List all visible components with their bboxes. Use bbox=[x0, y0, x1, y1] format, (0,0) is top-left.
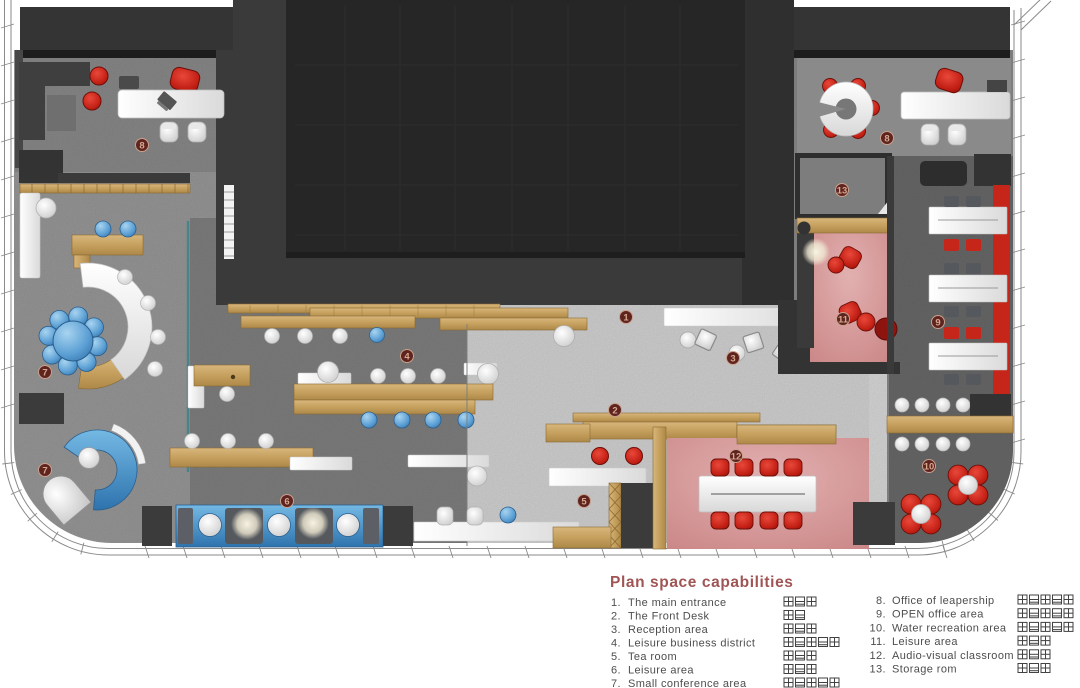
svg-text:Storage rom: Storage rom bbox=[892, 664, 957, 676]
svg-text:8: 8 bbox=[139, 140, 144, 151]
svg-text:11: 11 bbox=[838, 314, 849, 325]
svg-text:1: 1 bbox=[623, 312, 629, 323]
svg-text:Leisure business district: Leisure business district bbox=[628, 638, 755, 650]
svg-text:10: 10 bbox=[924, 461, 935, 472]
svg-text:4: 4 bbox=[404, 351, 410, 362]
svg-text:Plan space capabilities: Plan space capabilities bbox=[610, 574, 794, 591]
svg-text:11.: 11. bbox=[870, 636, 886, 648]
svg-text:13: 13 bbox=[837, 185, 848, 196]
svg-text:2.: 2. bbox=[611, 611, 621, 623]
svg-text:4.: 4. bbox=[611, 638, 621, 650]
svg-text:7.: 7. bbox=[611, 678, 621, 688]
svg-text:2: 2 bbox=[612, 405, 617, 416]
svg-text:The Front Desk: The Front Desk bbox=[628, 611, 710, 623]
svg-text:Tea room: Tea room bbox=[628, 651, 677, 663]
svg-text:9.: 9. bbox=[876, 609, 886, 621]
svg-text:12.: 12. bbox=[870, 650, 887, 662]
svg-text:3: 3 bbox=[730, 353, 735, 364]
svg-text:Audio-visual classroom: Audio-visual classroom bbox=[892, 650, 1014, 662]
svg-text:Leisure area: Leisure area bbox=[628, 665, 694, 677]
svg-text:5.: 5. bbox=[611, 651, 621, 663]
svg-text:Leisure area: Leisure area bbox=[892, 636, 958, 648]
svg-text:13.: 13. bbox=[870, 664, 887, 676]
svg-text:3.: 3. bbox=[611, 624, 621, 636]
svg-text:6.: 6. bbox=[611, 665, 621, 677]
svg-text:7: 7 bbox=[42, 367, 47, 378]
svg-text:5: 5 bbox=[581, 496, 587, 507]
svg-text:9: 9 bbox=[935, 317, 940, 328]
svg-text:Office of leapership: Office of leapership bbox=[892, 595, 995, 607]
svg-text:Reception area: Reception area bbox=[628, 624, 709, 636]
svg-text:Water recreation area: Water recreation area bbox=[892, 622, 1007, 634]
svg-text:The main entrance: The main entrance bbox=[628, 597, 727, 609]
svg-text:1.: 1. bbox=[611, 597, 621, 609]
svg-text:12: 12 bbox=[731, 451, 742, 462]
svg-text:10.: 10. bbox=[870, 622, 887, 634]
svg-text:8.: 8. bbox=[876, 595, 886, 607]
svg-text:8: 8 bbox=[884, 133, 889, 144]
svg-text:Small conference area: Small conference area bbox=[628, 678, 747, 688]
svg-text:OPEN office area: OPEN office area bbox=[892, 609, 984, 621]
svg-text:6: 6 bbox=[284, 496, 289, 507]
svg-text:7: 7 bbox=[42, 465, 47, 476]
